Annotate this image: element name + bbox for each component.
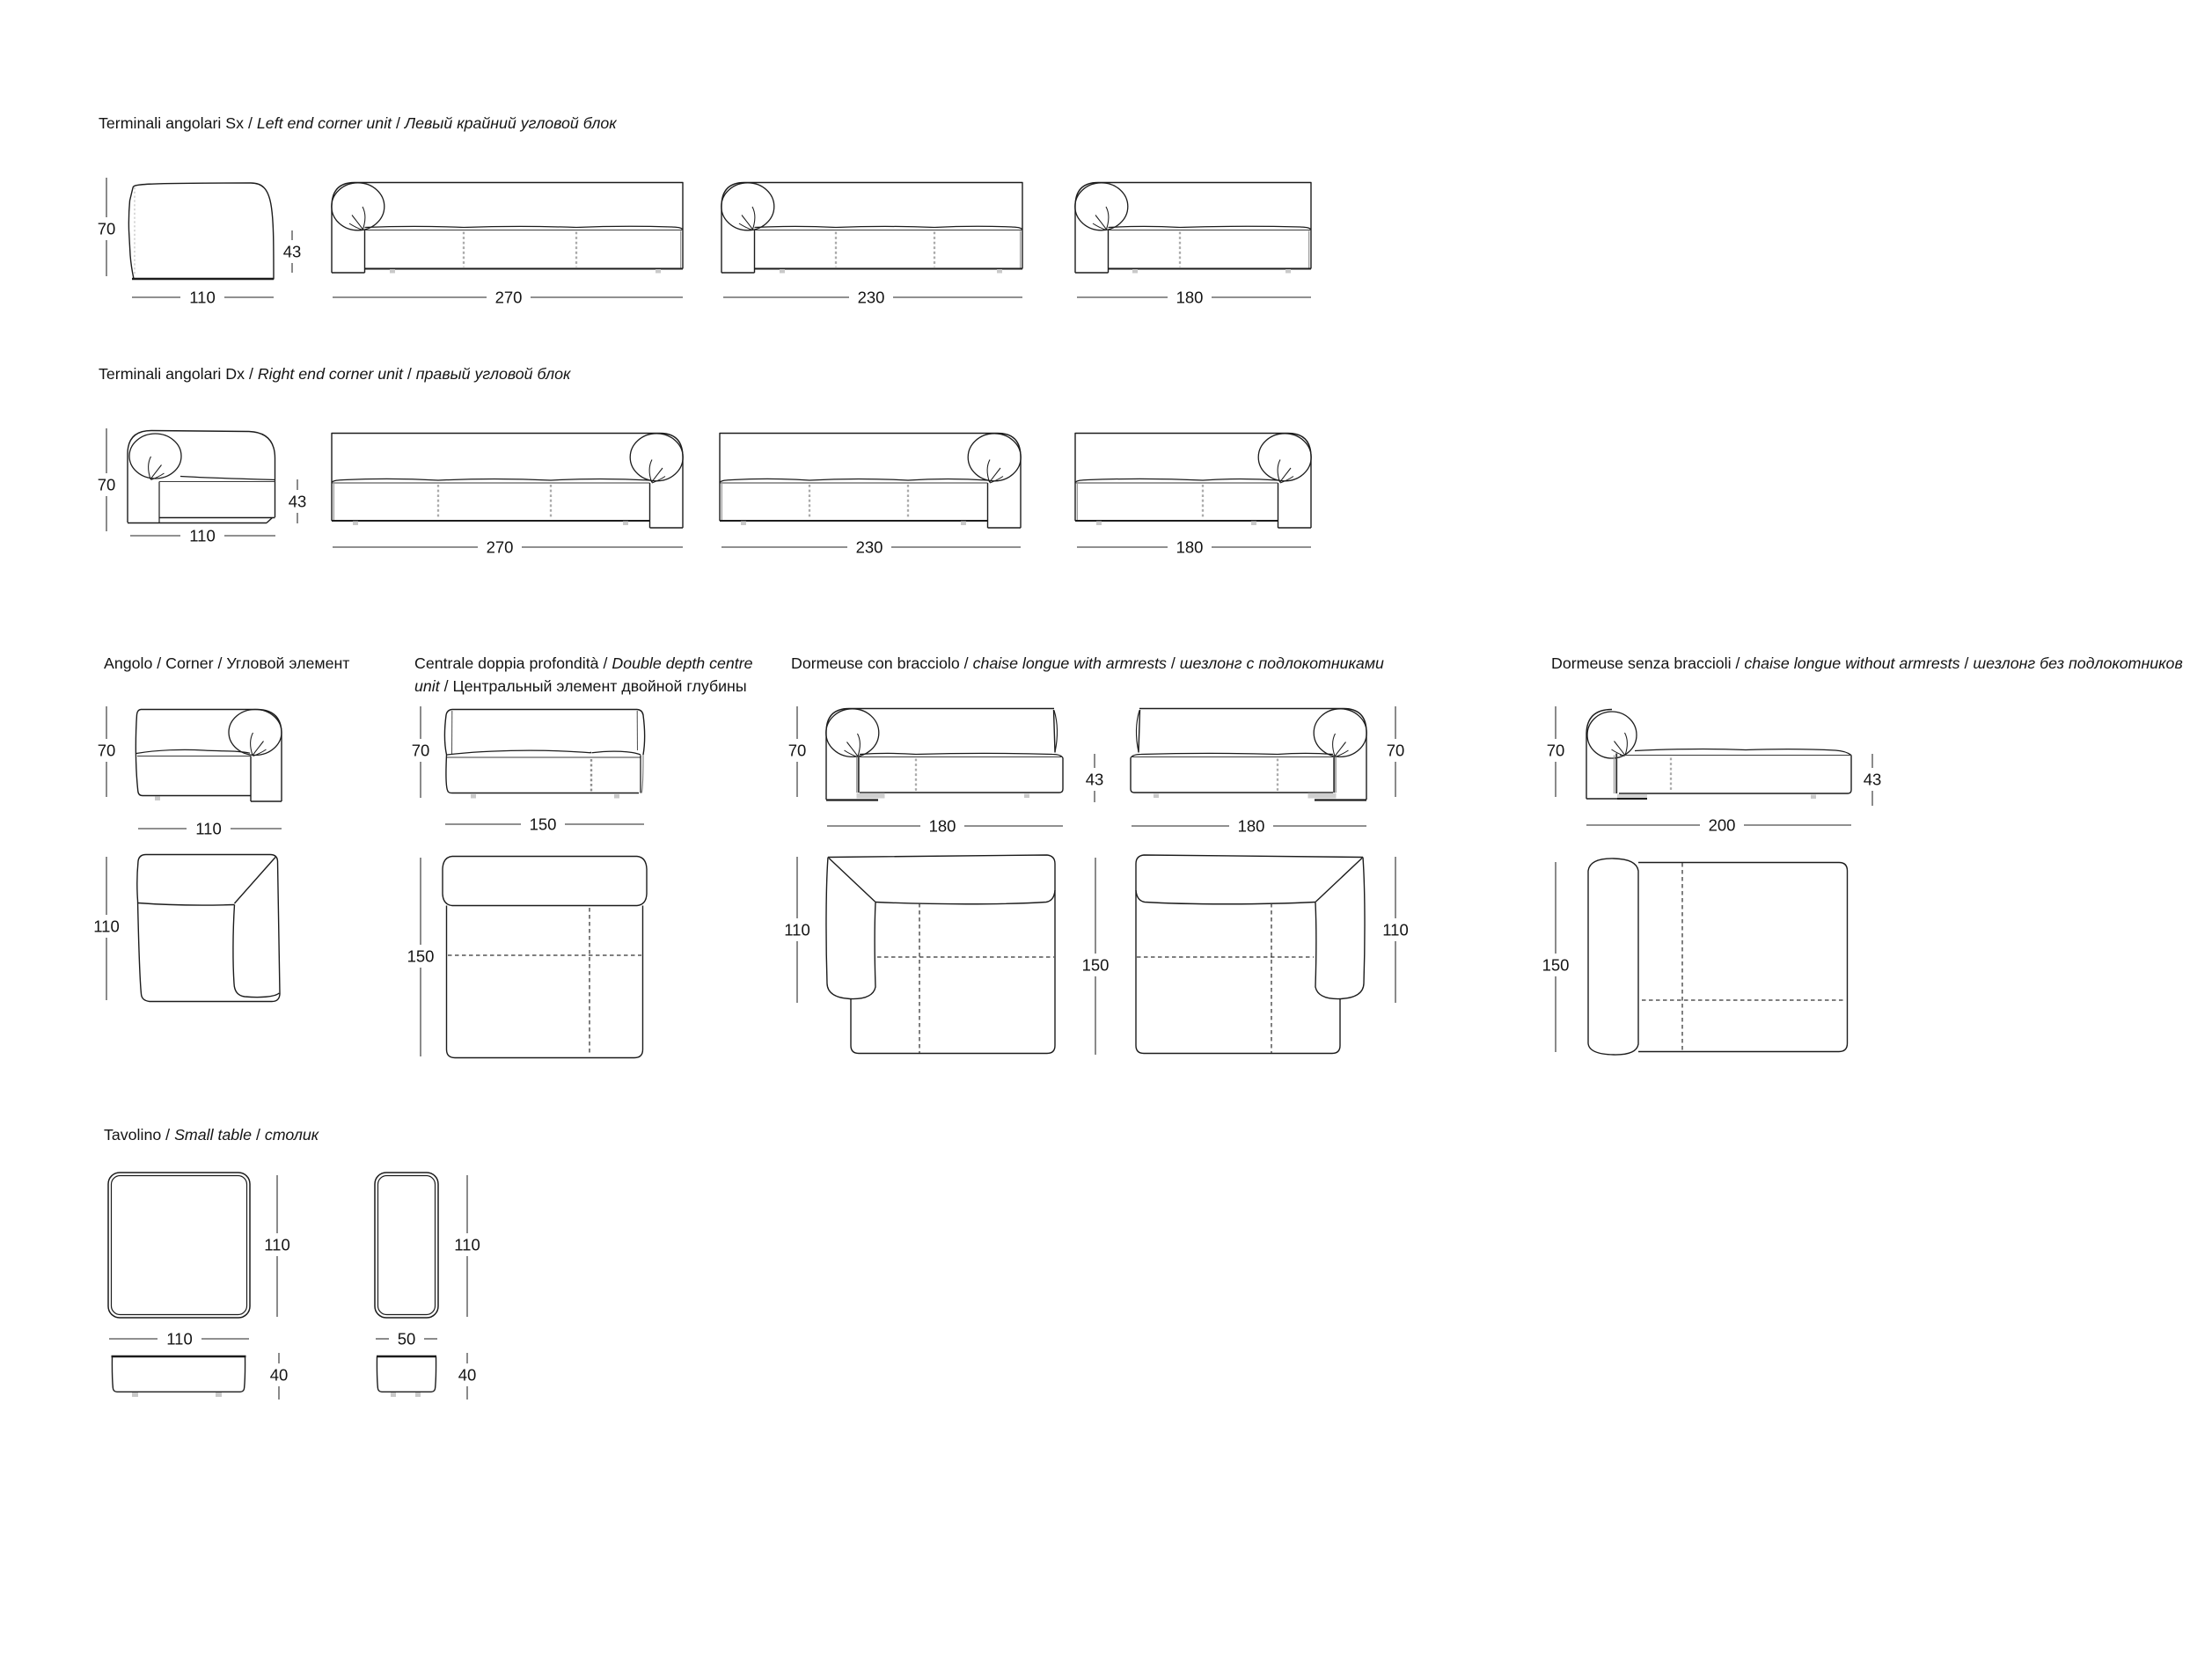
svg-text:43: 43: [1086, 771, 1104, 789]
svg-text:110: 110: [195, 820, 222, 838]
svg-text:Dormeuse senza braccioli / cha: Dormeuse senza braccioli / chaise longue…: [1551, 654, 2183, 672]
svg-text:180: 180: [1176, 289, 1204, 307]
svg-text:70: 70: [98, 220, 116, 238]
svg-text:110: 110: [784, 921, 810, 939]
svg-text:70: 70: [788, 742, 807, 760]
svg-text:70: 70: [98, 476, 116, 494]
svg-text:270: 270: [495, 289, 523, 307]
svg-text:110: 110: [264, 1236, 290, 1254]
svg-text:70: 70: [412, 742, 430, 760]
svg-text:110: 110: [454, 1236, 480, 1254]
svg-text:180: 180: [929, 817, 956, 836]
svg-text:70: 70: [98, 742, 116, 760]
svg-text:270: 270: [487, 538, 514, 557]
svg-text:43: 43: [1864, 771, 1882, 789]
svg-text:70: 70: [1387, 742, 1405, 760]
svg-text:Terminali angolari Dx / Right: Terminali angolari Dx / Right end corner…: [99, 365, 571, 383]
svg-text:43: 43: [289, 493, 307, 511]
svg-text:110: 110: [189, 289, 216, 307]
svg-text:Tavolino / Small table / столи: Tavolino / Small table / столик: [104, 1126, 319, 1144]
svg-text:110: 110: [166, 1330, 193, 1348]
svg-text:43: 43: [283, 243, 302, 261]
svg-text:200: 200: [1709, 816, 1736, 835]
svg-text:150: 150: [530, 815, 557, 834]
svg-text:150: 150: [1542, 956, 1570, 975]
svg-text:110: 110: [93, 917, 120, 936]
svg-text:Angolo / Corner / Угловой элем: Angolo / Corner / Угловой элемент: [104, 654, 349, 672]
svg-text:Centrale doppia profondità / D: Centrale doppia profondità / Double dept…: [414, 654, 753, 672]
svg-text:110: 110: [189, 527, 216, 545]
svg-text:180: 180: [1238, 817, 1265, 836]
svg-text:70: 70: [1547, 742, 1565, 760]
svg-text:230: 230: [858, 289, 885, 307]
svg-text:50: 50: [398, 1330, 416, 1348]
svg-text:150: 150: [407, 947, 435, 966]
svg-text:Terminali angolari Sx / Left e: Terminali angolari Sx / Left end corner …: [99, 114, 617, 132]
svg-text:40: 40: [270, 1366, 289, 1385]
svg-text:150: 150: [1082, 956, 1110, 975]
svg-text:180: 180: [1176, 538, 1204, 557]
svg-text:40: 40: [458, 1366, 477, 1385]
svg-text:230: 230: [856, 538, 883, 557]
svg-text:110: 110: [1382, 921, 1409, 939]
svg-text:unit / Центральный элемент дво: unit / Центральный элемент двойной глуби…: [414, 677, 747, 695]
svg-text:Dormeuse con bracciolo / chais: Dormeuse con bracciolo / chaise longue w…: [791, 654, 1384, 672]
